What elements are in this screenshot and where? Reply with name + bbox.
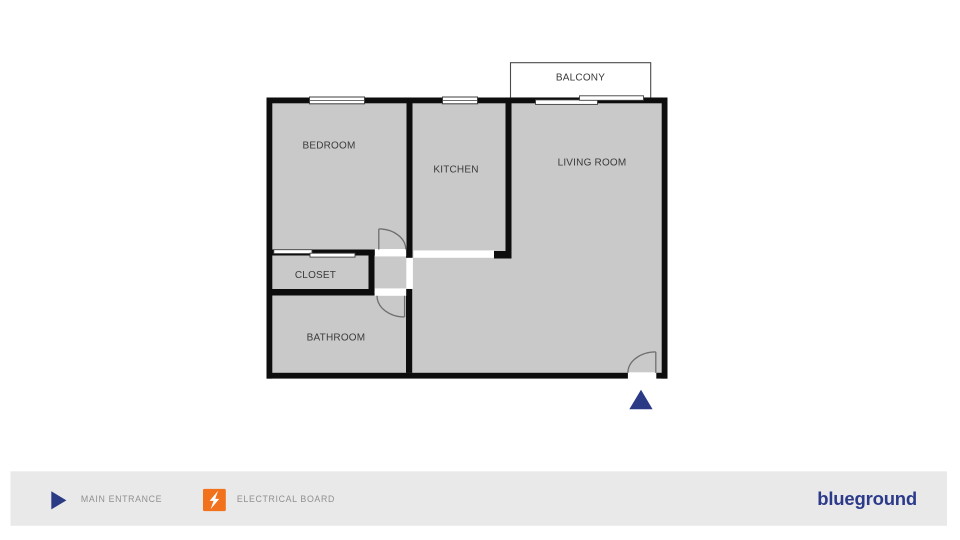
svg-text:MAIN ENTRANCE: MAIN ENTRANCE: [81, 494, 162, 504]
svg-text:blueground: blueground: [817, 488, 917, 509]
svg-text:CLOSET: CLOSET: [295, 270, 336, 281]
svg-text:LIVING ROOM: LIVING ROOM: [558, 158, 627, 169]
svg-text:BATHROOM: BATHROOM: [307, 333, 366, 344]
svg-text:ELECTRICAL BOARD: ELECTRICAL BOARD: [237, 494, 335, 504]
svg-text:KITCHEN: KITCHEN: [433, 165, 478, 176]
svg-text:BALCONY: BALCONY: [556, 73, 605, 84]
svg-text:BEDROOM: BEDROOM: [302, 141, 355, 152]
